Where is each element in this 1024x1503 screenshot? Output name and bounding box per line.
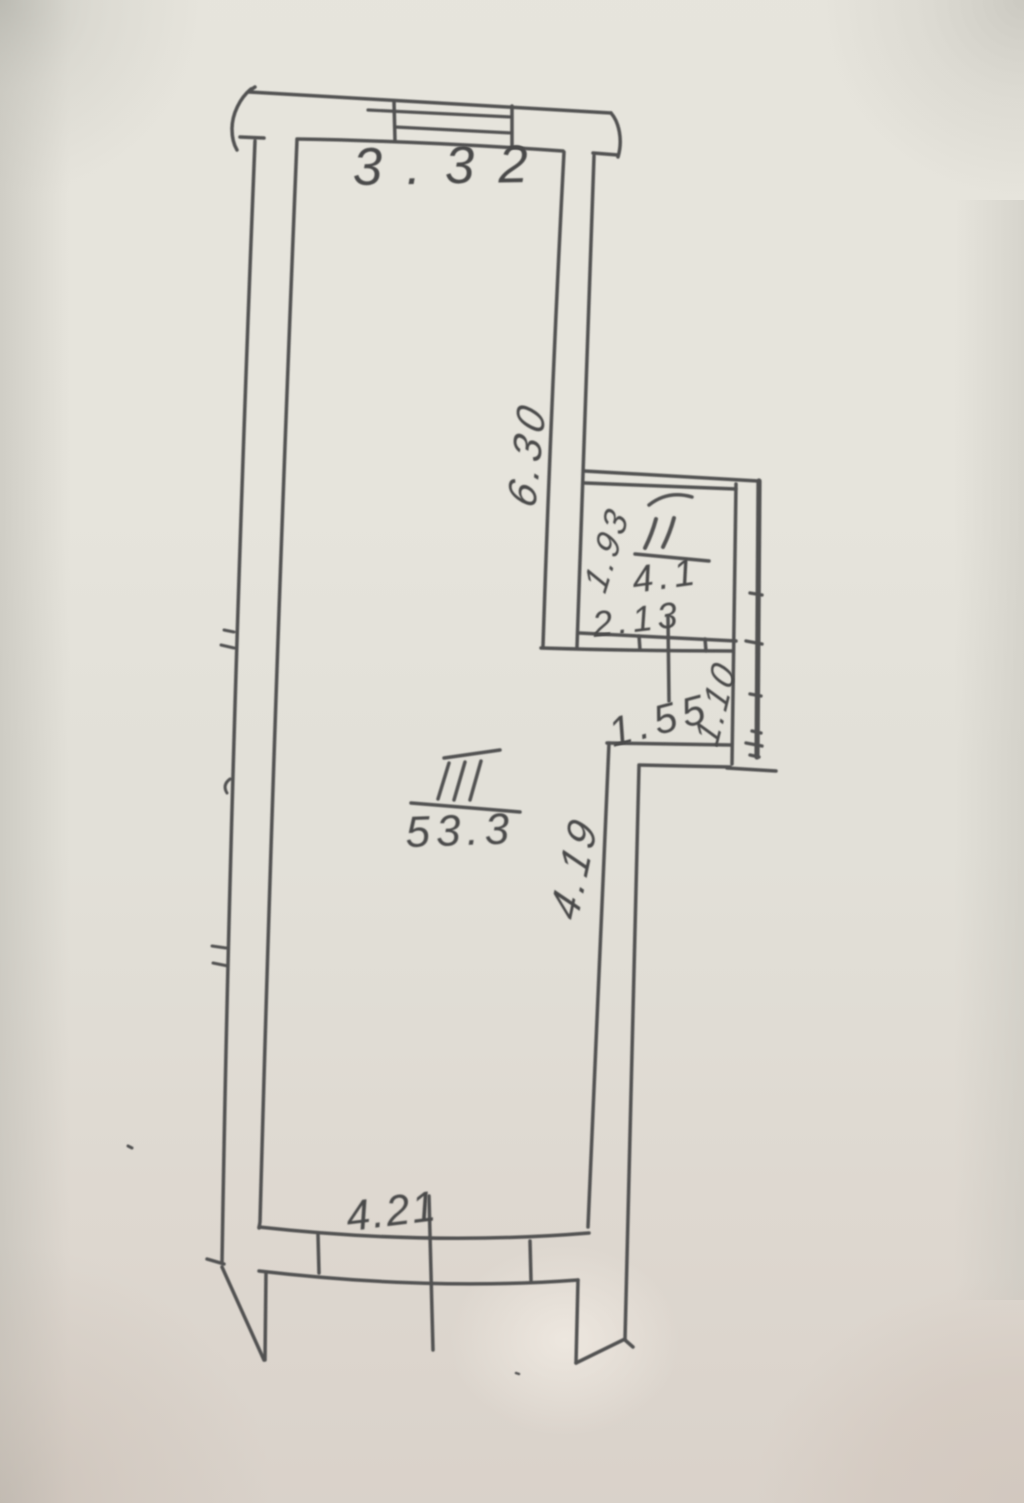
svg-text:3.32: 3.32 — [352, 135, 552, 197]
svg-text:53.3: 53.3 — [405, 804, 516, 857]
